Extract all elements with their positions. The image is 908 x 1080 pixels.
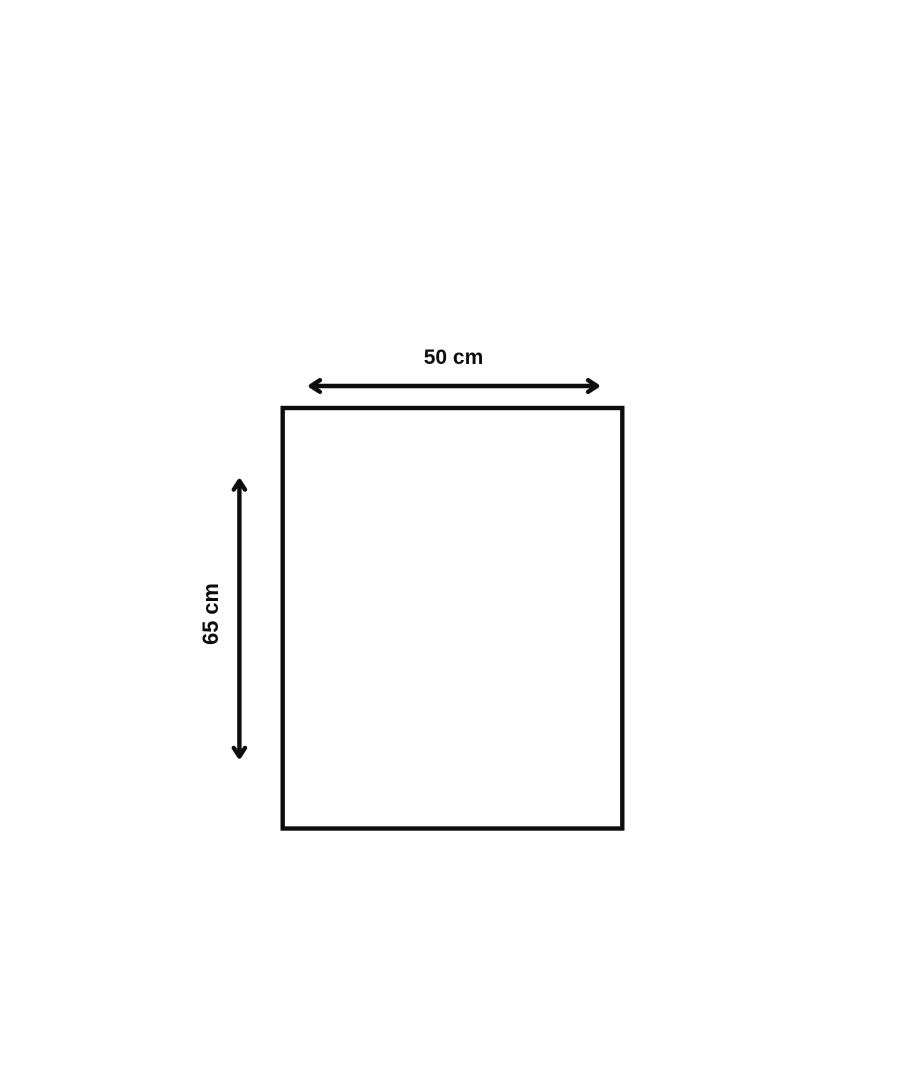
svg-text:50 cm: 50 cm [424,346,484,369]
svg-text:65 cm: 65 cm [198,583,223,645]
